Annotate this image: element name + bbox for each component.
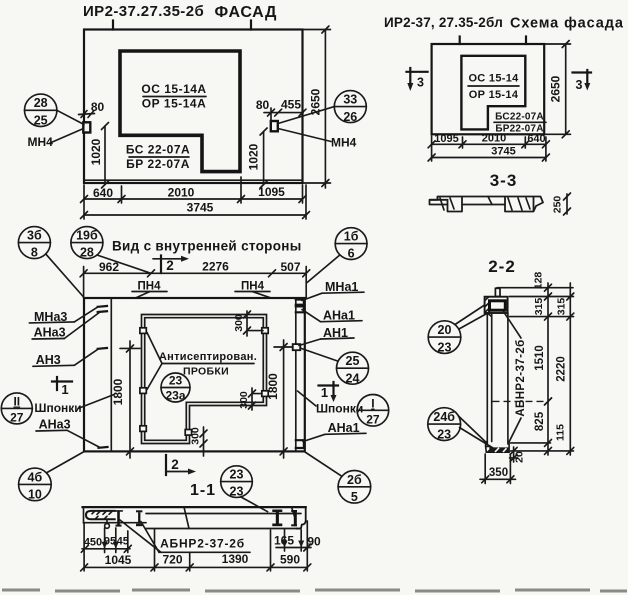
- svg-text:315: 315: [533, 298, 545, 316]
- svg-text:2010: 2010: [168, 186, 195, 200]
- svg-text:2: 2: [166, 258, 174, 273]
- svg-text:25: 25: [346, 354, 360, 368]
- svg-text:3-3: 3-3: [490, 171, 518, 190]
- svg-text:МН4: МН4: [28, 135, 54, 149]
- svg-text:АНа3: АНа3: [34, 326, 66, 340]
- svg-text:Шпонки: Шпонки: [34, 401, 81, 415]
- svg-text:28: 28: [34, 96, 48, 110]
- svg-text:95: 95: [104, 536, 116, 548]
- svg-text:24: 24: [346, 372, 360, 386]
- svg-text:1020: 1020: [247, 143, 261, 170]
- svg-text:24б: 24б: [433, 410, 455, 424]
- svg-text:455: 455: [281, 98, 301, 112]
- svg-text:825: 825: [534, 411, 546, 431]
- svg-text:1095: 1095: [258, 185, 285, 199]
- svg-text:19б: 19б: [76, 229, 98, 243]
- svg-text:Схема фасада: Схема фасада: [510, 16, 624, 32]
- svg-text:300: 300: [233, 314, 245, 332]
- svg-text:БР 22-07А: БР 22-07А: [126, 157, 190, 171]
- svg-text:БС22-07А: БС22-07А: [495, 112, 544, 123]
- svg-text:25: 25: [34, 114, 48, 128]
- svg-text:1095: 1095: [434, 133, 458, 145]
- svg-text:1-1: 1-1: [190, 482, 216, 499]
- svg-text:ФАСАД: ФАСАД: [215, 4, 278, 21]
- svg-text:507: 507: [280, 260, 300, 274]
- svg-text:27: 27: [10, 411, 24, 425]
- svg-text:10: 10: [28, 488, 42, 502]
- svg-text:28: 28: [80, 246, 94, 260]
- svg-text:ОР 15-14: ОР 15-14: [469, 89, 519, 101]
- svg-text:6: 6: [348, 247, 355, 261]
- svg-text:26: 26: [343, 110, 357, 124]
- svg-text:2: 2: [171, 457, 179, 472]
- svg-text:АБНР2-37-2б: АБНР2-37-2б: [515, 339, 527, 416]
- svg-text:Шпонки: Шпонки: [316, 402, 363, 416]
- svg-text:27: 27: [366, 413, 380, 427]
- svg-text:23: 23: [169, 374, 183, 388]
- svg-text:МН4: МН4: [331, 136, 357, 150]
- svg-text:ОС 15-14: ОС 15-14: [468, 73, 519, 85]
- svg-text:720: 720: [162, 553, 182, 567]
- svg-text:1: 1: [321, 385, 328, 400]
- svg-text:350: 350: [489, 467, 508, 479]
- svg-text:20: 20: [514, 451, 526, 463]
- svg-text:1045: 1045: [105, 553, 132, 567]
- svg-text:5: 5: [351, 490, 358, 504]
- svg-text:23: 23: [438, 341, 452, 355]
- svg-text:1390: 1390: [222, 552, 249, 566]
- svg-text:165: 165: [274, 534, 294, 548]
- svg-text:23: 23: [437, 428, 451, 442]
- svg-text:ОС 15-14А: ОС 15-14А: [141, 82, 206, 96]
- svg-text:1б: 1б: [344, 230, 359, 244]
- svg-text:590: 590: [280, 553, 300, 567]
- svg-text:90: 90: [307, 535, 321, 549]
- svg-text:23а: 23а: [165, 389, 185, 403]
- svg-text:Антисептирован.: Антисептирован.: [159, 351, 257, 363]
- svg-text:1: 1: [61, 382, 68, 397]
- svg-text:250: 250: [552, 196, 564, 214]
- svg-text:2б: 2б: [347, 473, 362, 487]
- svg-text:640: 640: [527, 133, 545, 145]
- svg-text:45: 45: [117, 536, 129, 548]
- svg-text:1800: 1800: [111, 378, 125, 405]
- svg-text:ПРОБКИ: ПРОБКИ: [183, 366, 229, 378]
- svg-text:2010: 2010: [482, 133, 506, 145]
- svg-text:Вид с внутренней стороны: Вид с внутренней стороны: [112, 239, 302, 254]
- svg-text:23: 23: [230, 468, 244, 482]
- svg-text:8: 8: [31, 246, 38, 260]
- svg-text:БС 22-07А: БС 22-07А: [126, 143, 190, 157]
- svg-text:I: I: [371, 397, 374, 411]
- svg-text:2276: 2276: [202, 260, 229, 274]
- svg-text:АБНР2-37-2б: АБНР2-37-2б: [160, 537, 245, 551]
- svg-text:300: 300: [238, 391, 250, 409]
- svg-text:3745: 3745: [187, 201, 214, 215]
- svg-text:ОР 15-14А: ОР 15-14А: [142, 97, 207, 111]
- svg-text:3б: 3б: [27, 229, 42, 243]
- svg-text:1510: 1510: [534, 345, 546, 371]
- svg-text:20: 20: [438, 323, 452, 337]
- svg-text:300: 300: [190, 427, 202, 445]
- svg-text:2220: 2220: [556, 356, 568, 382]
- svg-text:1800: 1800: [266, 373, 280, 400]
- svg-text:1020: 1020: [89, 138, 103, 165]
- svg-text:115: 115: [555, 424, 567, 441]
- svg-text:315: 315: [556, 298, 568, 316]
- svg-text:2-2: 2-2: [488, 257, 516, 276]
- svg-text:2650: 2650: [549, 75, 563, 102]
- svg-text:640: 640: [93, 186, 113, 200]
- svg-text:ИР2-37.27.35-2б: ИР2-37.27.35-2б: [83, 3, 204, 20]
- svg-text:80: 80: [256, 98, 270, 112]
- svg-text:АНа3: АНа3: [39, 418, 71, 432]
- svg-text:3: 3: [417, 76, 424, 90]
- svg-text:450: 450: [84, 537, 102, 549]
- svg-text:3745: 3745: [491, 146, 515, 158]
- svg-text:2650: 2650: [309, 88, 323, 115]
- svg-text:3: 3: [576, 78, 583, 92]
- svg-text:ИР2-37, 27.35-2бл: ИР2-37, 27.35-2бл: [384, 15, 503, 30]
- svg-text:128: 128: [533, 272, 545, 290]
- svg-text:II: II: [13, 395, 20, 409]
- svg-text:4б: 4б: [28, 471, 43, 485]
- svg-text:33: 33: [343, 93, 357, 107]
